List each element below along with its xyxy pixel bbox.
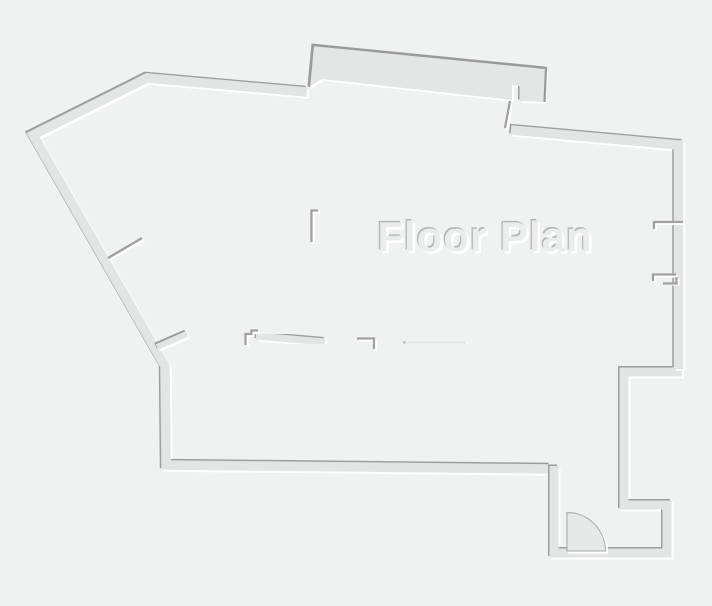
floor-plan-title: Floor Plan (377, 213, 592, 260)
wall-mid-wall-segment-4 (405, 342, 466, 343)
floor-plan-canvas: Floor PlanFloor PlanFloor Plan (0, 0, 712, 606)
floor-plan-page: Floor PlanFloor PlanFloor Plan (0, 0, 712, 606)
plan-background (0, 0, 712, 606)
title-layer: Floor PlanFloor PlanFloor Plan (376, 212, 595, 263)
